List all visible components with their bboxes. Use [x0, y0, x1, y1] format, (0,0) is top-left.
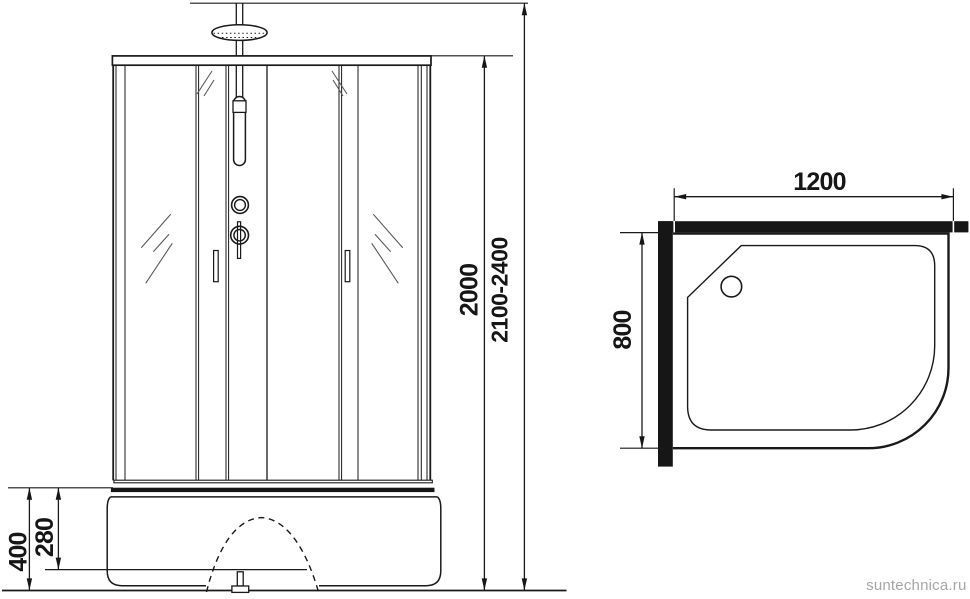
wall-left — [658, 221, 673, 466]
frame-vertical-lines — [113, 65, 430, 480]
technical-drawing-page: 400 280 2000 2100-2400 — [0, 0, 970, 599]
bottom-frame-rail — [114, 480, 432, 483]
door-handle-right — [345, 251, 350, 282]
dim-label-total-height: 2100-2400 — [487, 237, 513, 343]
watermark: suntechnica.ru — [866, 577, 966, 594]
tray-rim-band — [111, 488, 435, 492]
hand-shower-wand — [233, 97, 246, 166]
dim-label-tray-width: 1200 — [793, 168, 845, 196]
adjustable-foot — [232, 572, 249, 593]
drain-hole — [721, 276, 742, 297]
wall-top — [658, 221, 968, 232]
shower-head — [212, 25, 267, 41]
dimension-lines-front — [29, 3, 524, 590]
tray-inner-outline — [688, 246, 935, 430]
shower-cabin-dimension-drawing: 400 280 2000 2100-2400 — [0, 0, 970, 599]
drain-access-arch — [207, 518, 319, 592]
top-frame-bar — [112, 56, 431, 65]
dim-label-base-total-height: 400 — [5, 532, 33, 571]
tray-skirt — [107, 497, 441, 586]
mixer-knob-upper — [232, 197, 249, 214]
dimension-arrows-front — [27, 3, 527, 590]
dim-label-base-upper-height: 280 — [31, 518, 59, 557]
front-view: 400 280 2000 2100-2400 — [2, 3, 567, 592]
dim-label-tray-depth: 800 — [609, 310, 637, 349]
door-handle-left — [214, 251, 219, 282]
mixer-knob-lower — [231, 222, 249, 259]
glass-reflection-hatches — [141, 71, 402, 283]
shower-riser-pipe — [236, 3, 242, 97]
top-view: 1200 800 — [609, 168, 969, 467]
tray-outer-outline — [673, 234, 949, 449]
dim-label-glass-height: 2000 — [456, 264, 484, 316]
